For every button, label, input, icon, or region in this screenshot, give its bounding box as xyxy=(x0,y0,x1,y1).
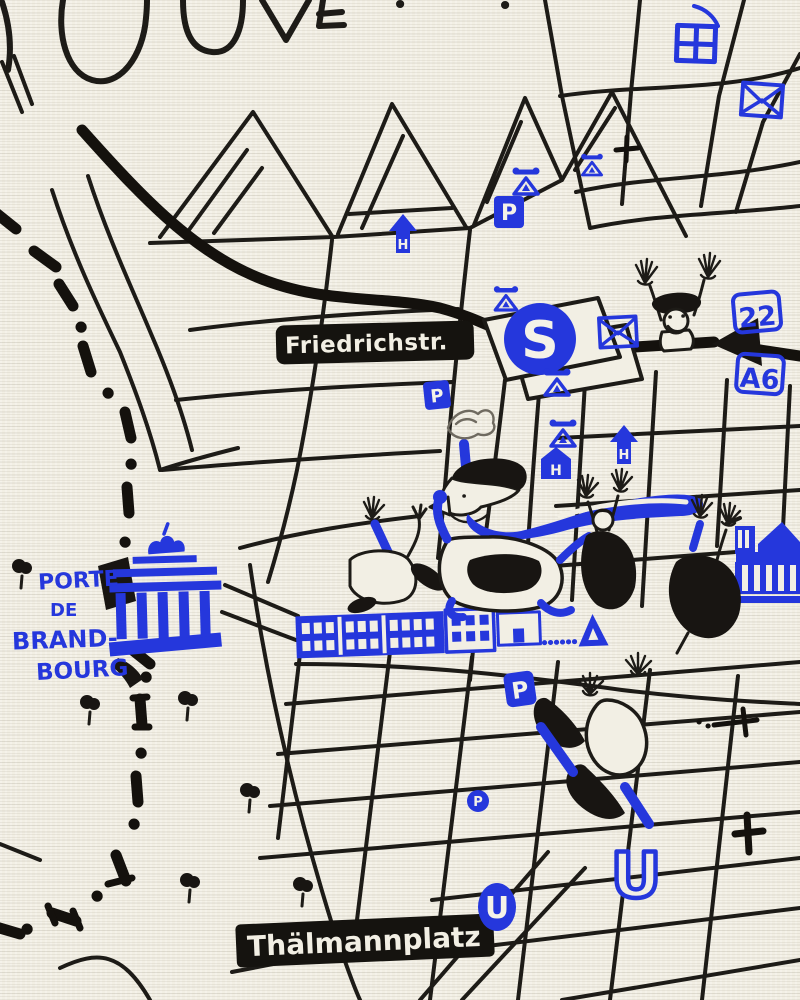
title-dots xyxy=(400,4,505,5)
gate-attic xyxy=(133,555,197,564)
title-letter-strokes xyxy=(2,0,344,81)
crowd-right2-coat xyxy=(669,555,741,638)
parking-blob-icon: P xyxy=(467,790,489,812)
gate-column xyxy=(137,592,148,638)
crowd-right2-sleeve xyxy=(693,524,700,548)
gate-quadriga-flag xyxy=(164,524,168,534)
telephone-icon xyxy=(494,286,518,310)
parking-icon: P xyxy=(494,196,524,228)
facade-dot-row xyxy=(544,642,574,643)
telephone-icon xyxy=(581,154,603,175)
gate-column xyxy=(200,591,211,637)
parking-letter: P xyxy=(510,677,530,705)
title-lettering xyxy=(2,0,505,81)
facade-west-block xyxy=(295,611,444,658)
gate-column xyxy=(158,592,169,638)
gate-label-line3: BRAND- xyxy=(12,624,119,656)
church-cross-icon xyxy=(735,815,763,852)
church-cross-icon xyxy=(616,137,638,161)
gate-label-line2: DE xyxy=(50,600,77,621)
streets-northeast-fan xyxy=(545,0,800,228)
crowd-right2-leg xyxy=(677,633,688,653)
crowd-right1-vest xyxy=(581,531,636,609)
church-cross-dots xyxy=(699,722,708,726)
ubahn-icon: U xyxy=(478,883,516,931)
streets-zigzag-blocks xyxy=(150,92,686,243)
crowd-left-hand xyxy=(364,497,384,520)
gate-quadriga xyxy=(148,535,185,554)
gate-label-line4: BOURG xyxy=(35,655,129,686)
facade-right-door xyxy=(513,628,524,642)
figure-climber xyxy=(636,253,720,351)
railway-west xyxy=(82,130,492,327)
telephone-icon xyxy=(513,168,540,195)
telephone-icon xyxy=(550,420,577,447)
parking-letter: P xyxy=(429,385,444,407)
crowd-central-waist xyxy=(467,554,541,593)
map-canvas: PORTE DE BRAND- BOURG Friedrichstr. Thäl… xyxy=(0,0,800,1000)
gate-label-line1: PORTE xyxy=(37,566,119,595)
crowd-central-mitten xyxy=(433,490,447,504)
hotel-letter: H xyxy=(550,463,562,479)
parking-icon: P xyxy=(503,670,537,708)
crowd-left-arm2 xyxy=(408,505,426,556)
sbahn-letter: S xyxy=(521,311,558,371)
palace-pediment xyxy=(758,522,800,552)
friedrichstr-text: Friedrichstr. xyxy=(285,329,448,359)
climber-hands xyxy=(636,253,720,285)
crowd-central-boot xyxy=(541,603,571,613)
sketch-scribble xyxy=(448,410,494,438)
hotel-letter: H xyxy=(398,238,409,253)
ubahn-letter: U xyxy=(485,891,509,926)
ubahn-outline-icon: U xyxy=(611,839,661,912)
hotel-letter: H xyxy=(619,448,630,463)
hotel-icon: H xyxy=(610,425,638,464)
gate-label: PORTE DE BRAND- BOURG xyxy=(12,566,129,686)
hotel-house-icon: H xyxy=(541,447,571,479)
palace-entablature xyxy=(736,552,800,562)
parking-letter: P xyxy=(501,201,517,226)
route-badge-a6-text: A6 xyxy=(739,363,781,397)
department-store-icon xyxy=(676,25,715,61)
parking-icon: P xyxy=(423,380,452,411)
blue-corner-arc xyxy=(694,6,718,26)
tumbler-body xyxy=(586,700,646,775)
palace-base xyxy=(733,596,800,603)
gate-column xyxy=(179,591,190,637)
friedrichstr-label: Friedrichstr. xyxy=(276,320,475,364)
route-badge-22-text: 22 xyxy=(737,300,777,334)
crowd-right1-hands xyxy=(578,469,632,498)
route-badge-22: 22 xyxy=(732,291,781,335)
parking-letter: P xyxy=(473,795,483,810)
crowd-left-body xyxy=(350,551,416,603)
